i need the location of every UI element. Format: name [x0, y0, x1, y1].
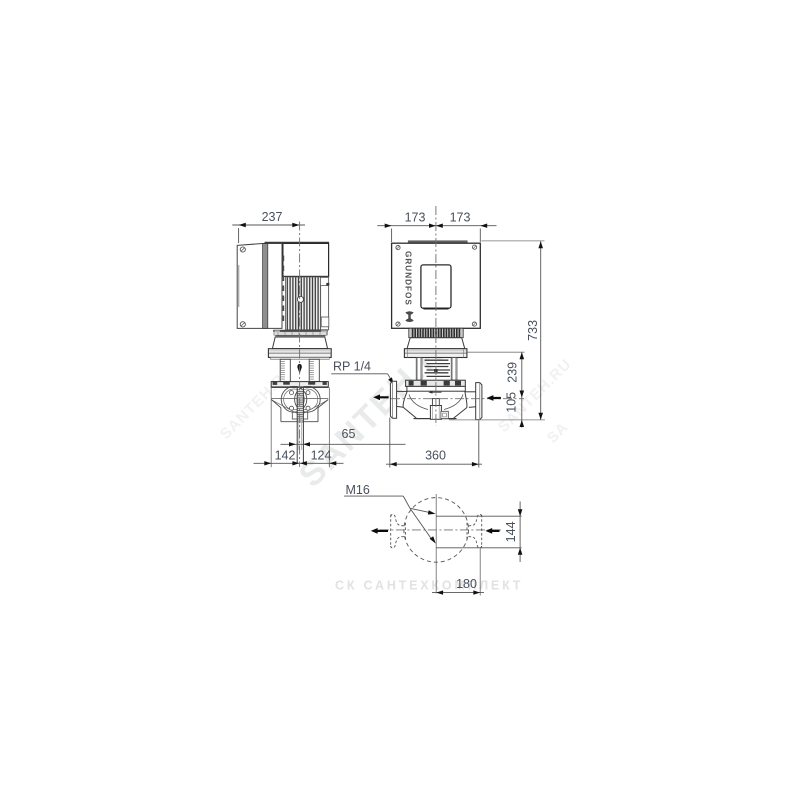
svg-text:733: 733 — [526, 320, 540, 341]
svg-text:180: 180 — [456, 577, 477, 591]
svg-text:142: 142 — [275, 449, 296, 463]
svg-text:СК САНТЕХКОМПЛЕКТ: СК САНТЕХКОМПЛЕКТ — [335, 579, 523, 593]
svg-text:173: 173 — [450, 211, 471, 225]
svg-text:65: 65 — [342, 427, 356, 441]
svg-text:GRUNDFOS: GRUNDFOS — [404, 251, 413, 306]
svg-text:360: 360 — [425, 449, 446, 463]
svg-text:105: 105 — [505, 392, 519, 413]
svg-text:144: 144 — [504, 521, 518, 542]
svg-text:237: 237 — [262, 210, 283, 224]
svg-text:173: 173 — [405, 211, 426, 225]
svg-text:124: 124 — [311, 449, 332, 463]
svg-text:RP 1/4: RP 1/4 — [333, 359, 371, 373]
svg-text:M16: M16 — [346, 483, 370, 497]
svg-text:239: 239 — [505, 362, 519, 383]
